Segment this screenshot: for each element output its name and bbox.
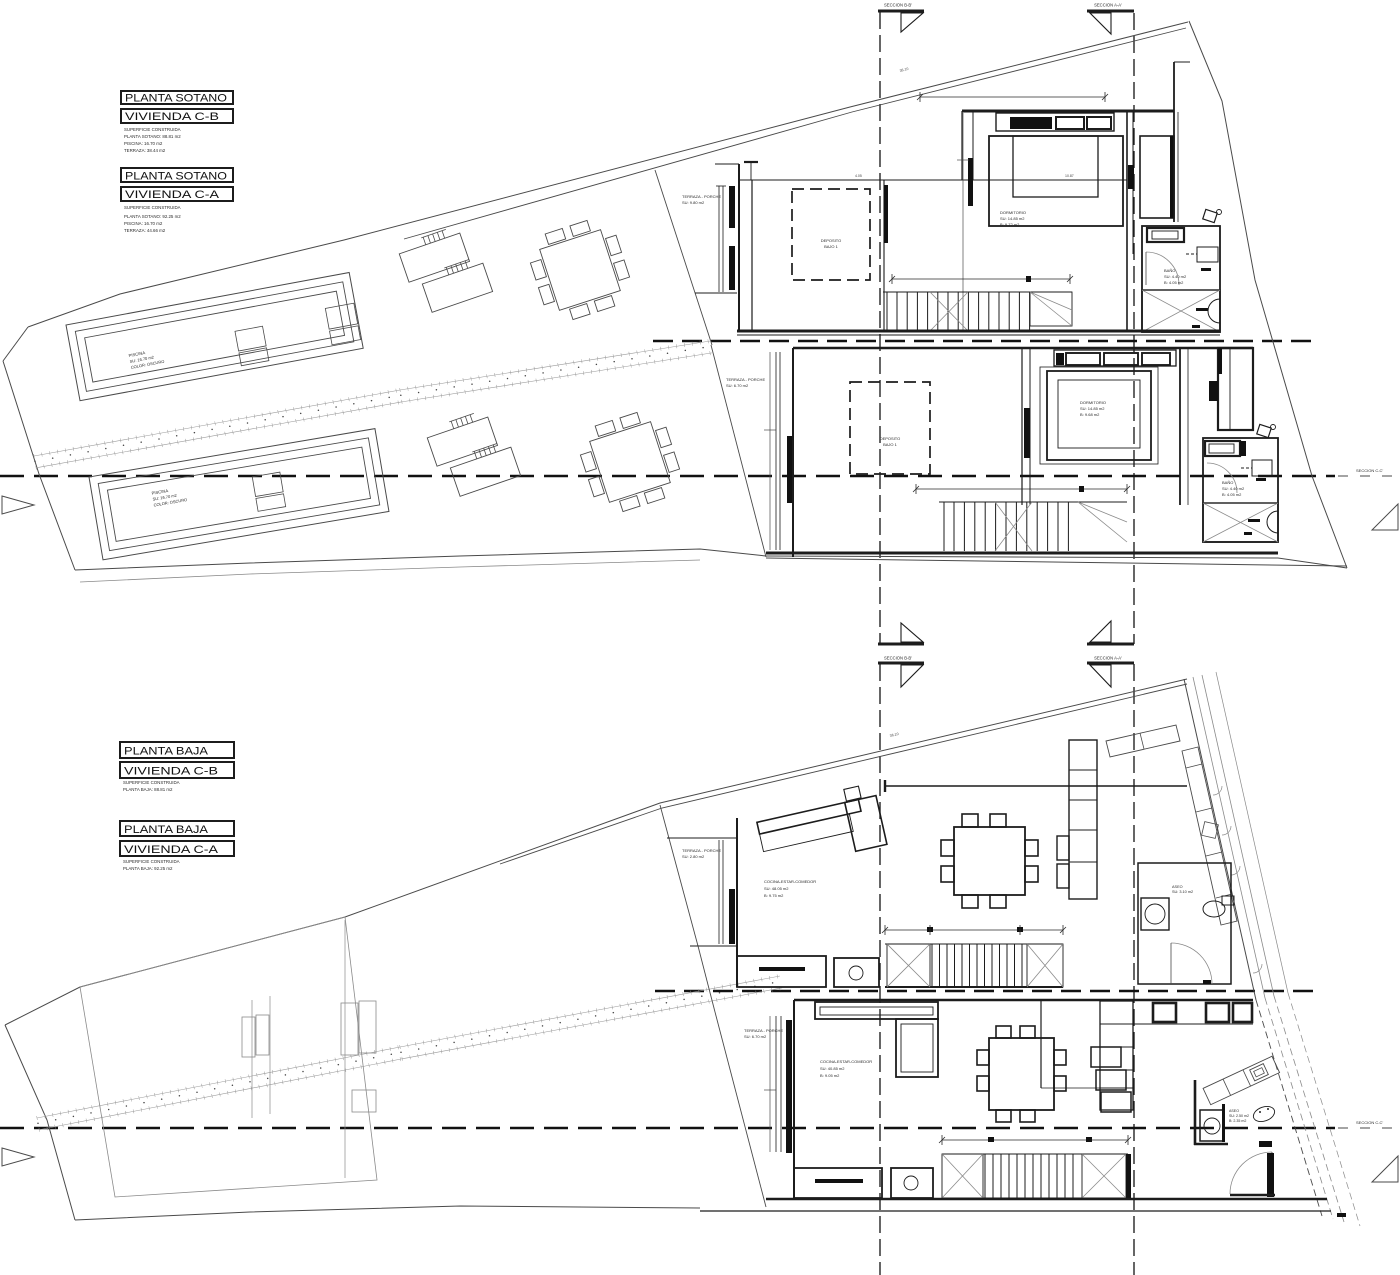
svg-text:SU: 14.85 m2: SU: 14.85 m2 <box>1000 216 1025 221</box>
svg-text:PLANTA BAJA: PLANTA BAJA <box>124 746 209 758</box>
svg-text:SUPERFICIE CONSTRUIDA: SUPERFICIE CONSTRUIDA <box>124 127 181 132</box>
svg-text:SECCION A-A': SECCION A-A' <box>1094 656 1122 661</box>
svg-text:SUPERFICIE CONSTRUIDA: SUPERFICIE CONSTRUIDA <box>123 780 180 785</box>
svg-text:SU: 3.10 m2: SU: 3.10 m2 <box>1172 890 1193 894</box>
svg-text:4.05: 4.05 <box>855 174 862 178</box>
svg-text:B: 9.05 m2: B: 9.05 m2 <box>820 1073 840 1078</box>
svg-text:PLANTA BAJA: 88.81 m2: PLANTA BAJA: 88.81 m2 <box>123 787 173 792</box>
svg-text:SU: 2.80 m2: SU: 2.80 m2 <box>682 854 705 859</box>
svg-text:TERRAZA - PORCHE: TERRAZA - PORCHE <box>744 1028 783 1033</box>
svg-text:DORMITORIO: DORMITORIO <box>1000 210 1026 215</box>
svg-text:SECCION C-C': SECCION C-C' <box>1356 1120 1383 1125</box>
svg-text:COCINA-ESTAR-COMEDOR: COCINA-ESTAR-COMEDOR <box>820 1059 872 1064</box>
svg-text:B: 2.35 m2: B: 2.35 m2 <box>1229 1119 1246 1123</box>
svg-text:DEPOSITO: DEPOSITO <box>821 238 842 243</box>
svg-text:SUPERFICIE CONSTRUIDA: SUPERFICIE CONSTRUIDA <box>123 859 180 864</box>
svg-text:BAÑO: BAÑO <box>1222 480 1233 485</box>
svg-text:PLANTA BAJA: PLANTA BAJA <box>124 824 209 836</box>
svg-text:B: 9.72 m2: B: 9.72 m2 <box>1000 222 1020 227</box>
svg-text:SECCION C-C': SECCION C-C' <box>1356 468 1383 473</box>
svg-text:ASEO: ASEO <box>1172 885 1183 889</box>
svg-text:TERRAZA - PORCHE: TERRAZA - PORCHE <box>682 194 721 199</box>
svg-text:PLANTA BAJA: 92.25 m2: PLANTA BAJA: 92.25 m2 <box>123 866 173 871</box>
svg-text:ASEO: ASEO <box>1229 1109 1239 1113</box>
svg-text:SU: 4.40 m2: SU: 4.40 m2 <box>1222 486 1245 491</box>
svg-text:VIVIENDA C-B: VIVIENDA C-B <box>124 766 218 778</box>
svg-text:VIVIENDA C-B: VIVIENDA C-B <box>125 111 219 123</box>
svg-text:SU: 6.70 m2: SU: 6.70 m2 <box>726 383 749 388</box>
svg-text:SU: 40.85 m2: SU: 40.85 m2 <box>820 1066 845 1071</box>
svg-text:BAÑO: BAÑO <box>1164 268 1175 273</box>
svg-text:SU: 4.40 m2: SU: 4.40 m2 <box>1164 274 1187 279</box>
svg-text:SU: 9.80 m2: SU: 9.80 m2 <box>682 200 705 205</box>
svg-text:TERRAZA - PORCHE: TERRAZA - PORCHE <box>682 848 721 853</box>
svg-text:VIVIENDA C-A: VIVIENDA C-A <box>124 844 219 856</box>
svg-text:PLANTA SOTANO: PLANTA SOTANO <box>125 93 227 105</box>
svg-text:VIVIENDA C-A: VIVIENDA C-A <box>125 189 220 201</box>
svg-text:BAJO 1: BAJO 1 <box>883 442 898 447</box>
svg-text:PLANTA SOTANO: 88.81 m2: PLANTA SOTANO: 88.81 m2 <box>124 134 181 139</box>
svg-text:SECCION B-B': SECCION B-B' <box>884 656 912 661</box>
svg-text:PLANTA SOTANO: PLANTA SOTANO <box>125 171 227 183</box>
svg-text:SECCION B-B': SECCION B-B' <box>884 3 912 8</box>
svg-text:SECCION A-A': SECCION A-A' <box>1094 3 1122 8</box>
svg-text:TERRAZA: 38.44 m2: TERRAZA: 38.44 m2 <box>124 148 166 153</box>
svg-text:DORMITORIO: DORMITORIO <box>1080 400 1106 405</box>
svg-text:SUPERFICIE CONSTRUIDA: SUPERFICIE CONSTRUIDA <box>124 205 181 210</box>
svg-text:TERRAZA: 44.66 m2: TERRAZA: 44.66 m2 <box>124 228 166 233</box>
svg-text:SU: 48.05 m2: SU: 48.05 m2 <box>764 886 789 891</box>
svg-text:B: 9.75 m2: B: 9.75 m2 <box>764 893 784 898</box>
svg-text:DEPOSITO: DEPOSITO <box>880 436 901 441</box>
svg-text:COCINA-ESTAR-COMEDOR: COCINA-ESTAR-COMEDOR <box>764 879 816 884</box>
svg-text:PISCINA: 16.70 m2: PISCINA: 16.70 m2 <box>124 221 163 226</box>
svg-text:BAJO 1: BAJO 1 <box>824 244 839 249</box>
svg-text:B: 4.05 m2: B: 4.05 m2 <box>1164 280 1184 285</box>
svg-text:B: 4.05 m2: B: 4.05 m2 <box>1222 492 1242 497</box>
svg-text:SU: 14.85 m2: SU: 14.85 m2 <box>1080 406 1105 411</box>
svg-text:SU: 6.70 m2: SU: 6.70 m2 <box>744 1034 767 1039</box>
svg-text:TERRAZA - PORCHE: TERRAZA - PORCHE <box>726 377 765 382</box>
svg-text:B: 9.68 m2: B: 9.68 m2 <box>1080 412 1100 417</box>
svg-text:PLANTA SOTANO: 92.25 m2: PLANTA SOTANO: 92.25 m2 <box>124 214 181 219</box>
svg-text:PISCINA: 16.70 m2: PISCINA: 16.70 m2 <box>124 141 163 146</box>
svg-text:10.87: 10.87 <box>1065 174 1074 178</box>
svg-text:SU: 2.50 m2: SU: 2.50 m2 <box>1229 1114 1249 1118</box>
